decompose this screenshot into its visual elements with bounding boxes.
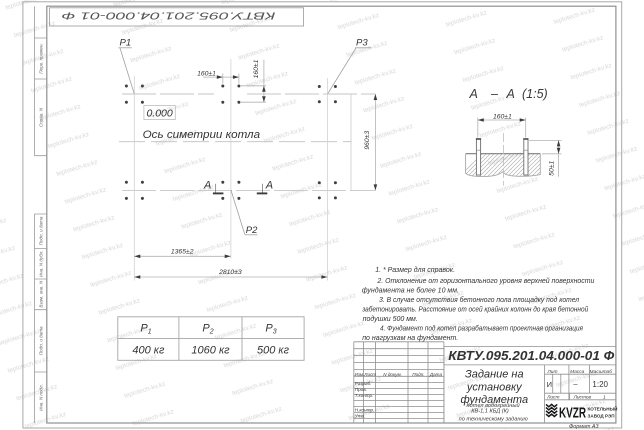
svg-text:50±1: 50±1 [548, 161, 555, 176]
svg-text:Разраб.: Разраб. [355, 381, 372, 386]
svg-text:Т.контр.: Т.контр. [355, 393, 374, 398]
svg-text:1: 1 [603, 394, 606, 400]
svg-text:КОТЕЛЬНЫЙ: КОТЕЛЬНЫЙ [588, 405, 618, 412]
svg-text:Лист: Лист [546, 394, 559, 400]
svg-text:Подп. и дата: Подп. и дата [39, 326, 44, 355]
svg-text:забетонировать. Расстояние от: забетонировать. Расстояние от осей крайн… [361, 306, 588, 314]
svg-text:Листов: Листов [573, 394, 592, 400]
svg-text:Лит: Лит [547, 369, 558, 375]
svg-text:Дата: Дата [429, 372, 443, 377]
svg-text:ЗАВОД РЭП: ЗАВОД РЭП [588, 414, 615, 419]
svg-text:А: А [265, 180, 273, 192]
svg-text:Формат А3: Формат А3 [569, 424, 599, 430]
svg-text:Подп.: Подп. [412, 372, 424, 377]
svg-text:Изм.Лист: Изм.Лист [355, 372, 377, 377]
svg-text:И: И [547, 380, 552, 389]
svg-text:Утв.: Утв. [355, 413, 365, 418]
svg-text:400 кг: 400 кг [132, 345, 165, 357]
svg-text:Масштаб: Масштаб [589, 369, 612, 375]
svg-text:Инв. N дубл.: Инв. N дубл. [39, 250, 44, 277]
svg-text:160±1: 160±1 [197, 70, 216, 77]
svg-text:1060 кг: 1060 кг [191, 345, 230, 357]
svg-text:Ось симетрии котла: Ось симетрии котла [143, 129, 261, 141]
svg-text:160±1: 160±1 [253, 59, 260, 78]
svg-text:Перв. примен.: Перв. примен. [39, 43, 44, 74]
svg-text:P3: P3 [356, 38, 368, 49]
svg-text:N докум.: N докум. [383, 372, 402, 377]
svg-text:2810±3: 2810±3 [218, 269, 242, 276]
svg-text:Инв. N подл.: Инв. N подл. [39, 384, 44, 411]
svg-text:Справ. N: Справ. N [39, 107, 44, 127]
svg-text:А: А [203, 180, 211, 192]
svg-text:Пров.: Пров. [355, 387, 367, 392]
svg-text:подушки 500 мм.: подушки 500 мм. [363, 315, 418, 323]
svg-text:Н.контр.: Н.контр. [355, 407, 374, 412]
svg-text:установку: установку [466, 382, 523, 394]
svg-text:3. В случае отсутствия бетонн: 3. В случае отсутствия бетонного пола пл… [379, 296, 579, 304]
svg-text:P1: P1 [120, 38, 132, 49]
svg-text:1. * Размер для справок.: 1. * Размер для справок. [375, 266, 455, 274]
svg-text:160±1: 160±1 [493, 113, 512, 120]
svg-text:Масса: Масса [570, 369, 585, 375]
svg-text:КВТУ.095.201.04.000-01 Ф: КВТУ.095.201.04.000-01 Ф [62, 10, 276, 22]
svg-text:KVZR: KVZR [559, 404, 586, 421]
svg-text:Взам. инв. N: Взам. инв. N [39, 280, 44, 307]
svg-text:КВ-1,1 КБД (К): КВ-1,1 КБД (К) [471, 408, 509, 414]
svg-text:500 кг: 500 кг [257, 345, 290, 357]
svg-text:Подп. и дата: Подп. и дата [39, 216, 44, 245]
svg-text:фундамента не более 10 мм.: фундамента не более 10 мм. [362, 286, 459, 294]
svg-text:2. Отклонение от горизонтальн: 2. Отклонение от горизонтального уровня … [376, 277, 594, 285]
svg-text:по техническому заданию: по техническому заданию [459, 417, 529, 423]
svg-text:КВТУ.095.201.04.000-01 Ф: КВТУ.095.201.04.000-01 Ф [448, 349, 614, 363]
svg-text:4. Фундамент под котел разраб: 4. Фундамент под котел разрабатывает про… [380, 325, 583, 333]
svg-text:1:20: 1:20 [592, 380, 608, 389]
svg-text:0.000: 0.000 [146, 108, 172, 120]
svg-text:1365±2: 1365±2 [171, 249, 194, 256]
svg-text:Задание на: Задание на [465, 369, 524, 381]
svg-text:по нагрузкам на фундамент.: по нагрузкам на фундамент. [362, 334, 458, 342]
svg-text:960±3: 960±3 [364, 131, 371, 150]
